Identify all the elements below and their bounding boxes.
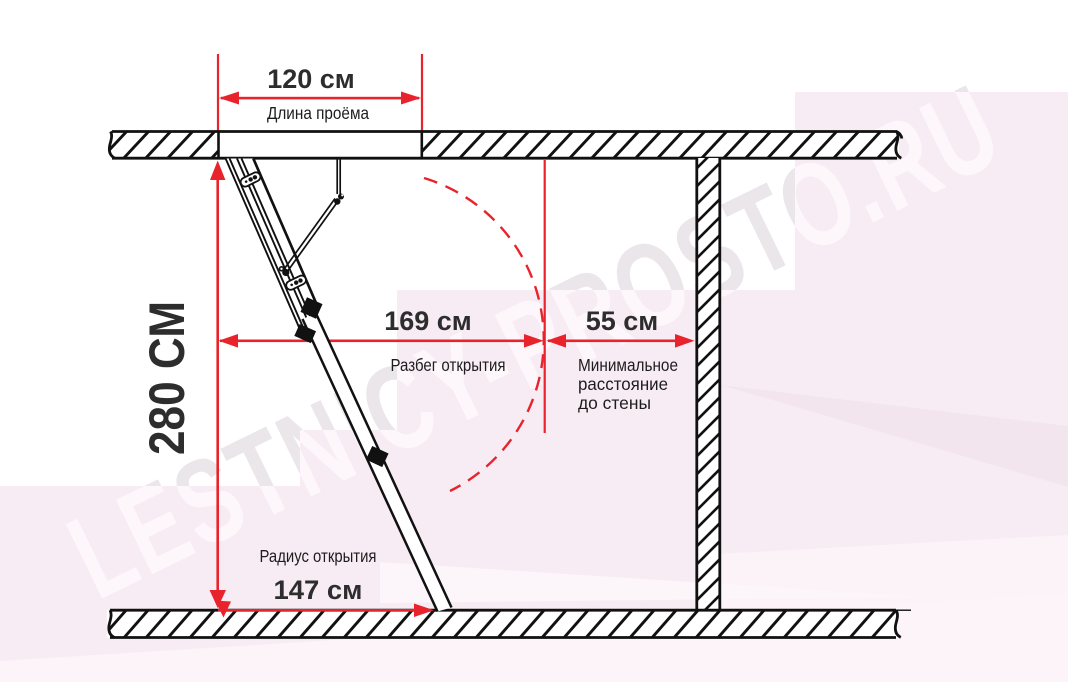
svg-text:Минимальное: Минимальное xyxy=(578,355,678,375)
svg-text:147 см: 147 см xyxy=(274,575,363,605)
svg-text:расстояние: расстояние xyxy=(578,374,668,394)
svg-text:Разбег открытия: Разбег открытия xyxy=(391,355,506,375)
svg-text:120 см: 120 см xyxy=(267,64,355,94)
svg-text:55 см: 55 см xyxy=(586,306,659,336)
svg-text:169 см: 169 см xyxy=(384,306,472,336)
svg-text:Длина проёма: Длина проёма xyxy=(267,103,369,123)
svg-text:до стены: до стены xyxy=(578,393,651,413)
svg-text:Радиус открытия: Радиус открытия xyxy=(260,546,377,566)
svg-text:280 СМ: 280 СМ xyxy=(139,301,195,455)
